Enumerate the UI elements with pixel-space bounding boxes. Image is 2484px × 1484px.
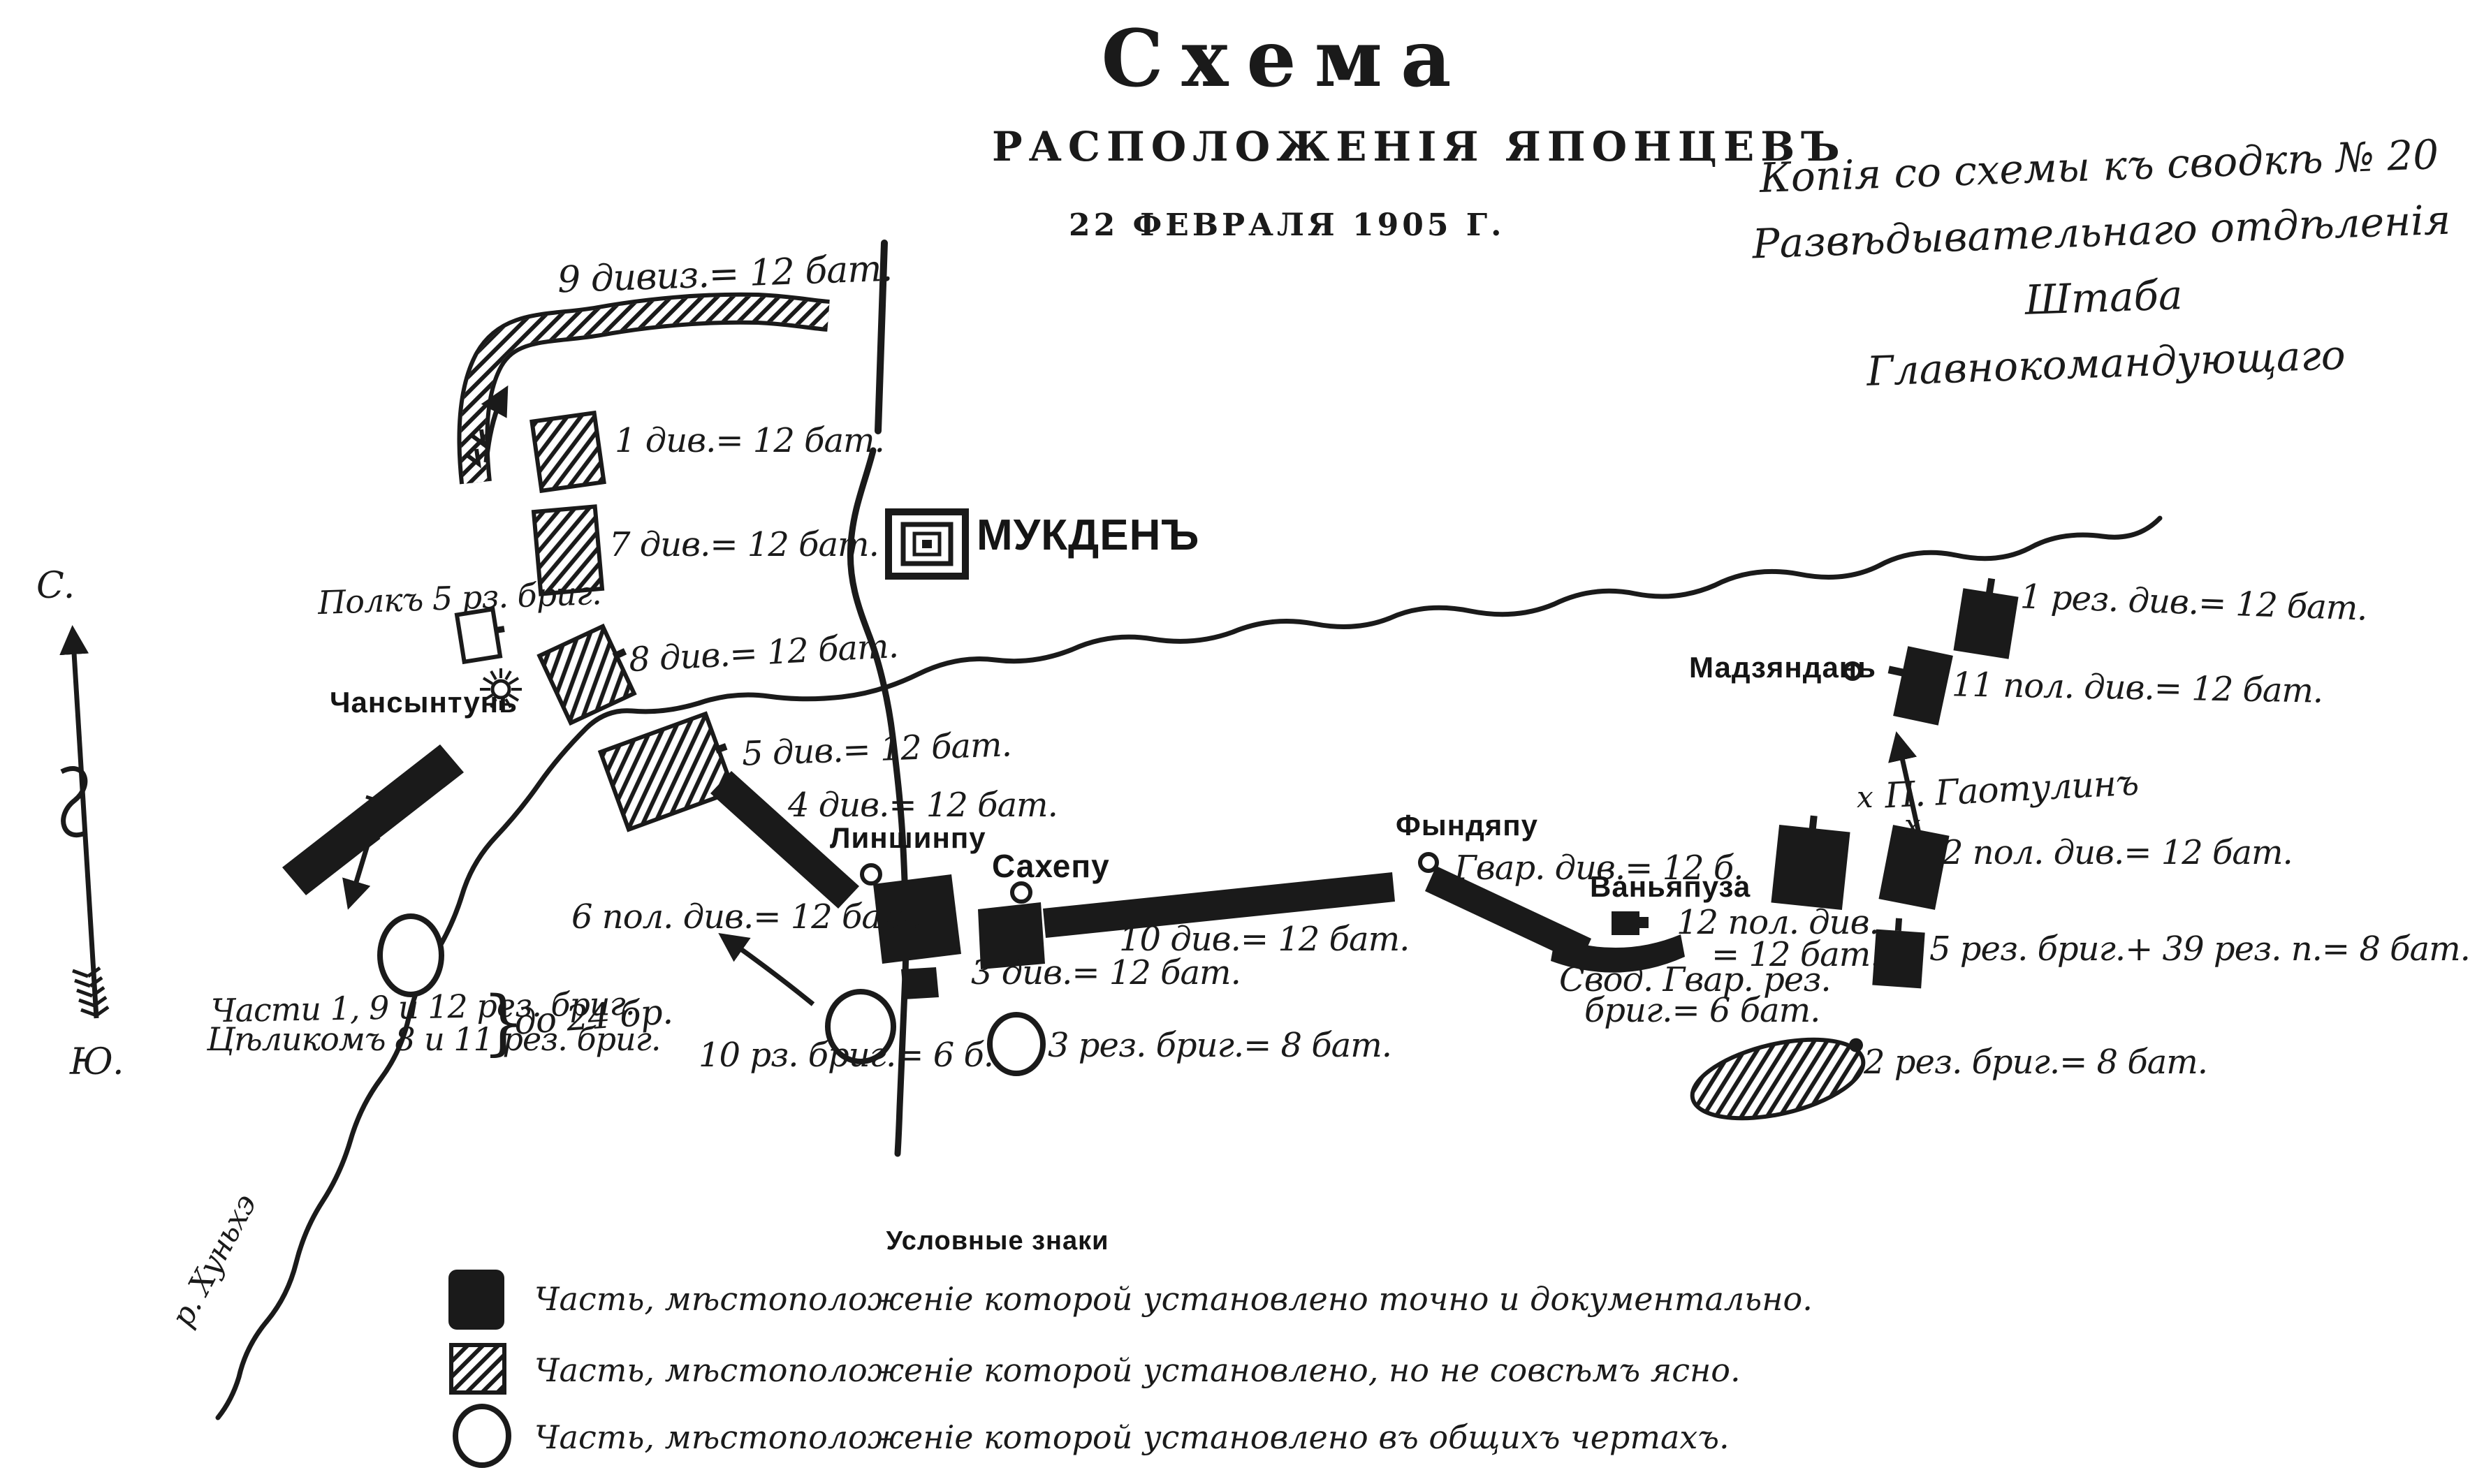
- compass: [61, 630, 108, 1018]
- compass-south-label: Ю.: [70, 1043, 124, 1082]
- label-unit-3rez: 3 рез. бриг.= 8 бат.: [1048, 1028, 1391, 1063]
- label-town-linshinpu: Линшинпу: [830, 823, 986, 853]
- unit-block-small: [901, 967, 939, 999]
- label-unit-11pol: 11 пол. див.= 12 бат.: [1952, 667, 2323, 709]
- vanyapuza-town-icon: [1612, 911, 1649, 935]
- unit-circle-3rez: [990, 1015, 1043, 1073]
- label-unit-6pol: 6 пол. див.= 12 бат.: [571, 899, 922, 934]
- unit-square-1div: [532, 413, 604, 491]
- page-title: Схема: [1076, 18, 1495, 101]
- label-unit-7div: 7 див.= 12 бат.: [609, 527, 879, 562]
- map-canvas: Схема РАСПОЛОЖЕНІЯ ЯПОНЦЕВЪ 22 ФЕВРАЛЯ 1…: [0, 0, 2484, 1484]
- compass-fletching: [73, 968, 108, 1015]
- label-unit-1div: 1 див.= 12 бат.: [615, 423, 884, 458]
- legend-symbol-hatched-square: [451, 1345, 504, 1393]
- arrow-to-6pol-label: [722, 936, 813, 1004]
- label-gaotulin-x2: х: [1904, 810, 1920, 841]
- label-town-mukden: МУКДЕНЪ: [977, 513, 1199, 558]
- label-town-sahepu: Сахепу: [992, 849, 1110, 883]
- label-unit-5rez: 5 рез. бриг.+ 39 рез. п.= 8 бат.: [1929, 932, 2470, 967]
- label-unit-2rez: 2 рез. бриг.= 8 бат.: [1864, 1045, 2207, 1080]
- sahepu-circle-icon: [1012, 883, 1030, 902]
- label-town-madzyandan: Мадзяндань: [1689, 652, 1876, 683]
- label-unit-10div: 10 див.= 12 бат.: [1119, 922, 1409, 957]
- unit-bar-chansyntun: [282, 744, 464, 895]
- source-note: Копія со схемы къ сводкѣ № 20 Развѣдыват…: [1721, 121, 2484, 409]
- legend-item-2-text: Часть, мѣстоположеніе которой установлен…: [534, 1353, 1741, 1387]
- label-town-fyndyapu: Фындяпу: [1396, 810, 1538, 841]
- legend-symbol-solid-square: [448, 1270, 504, 1330]
- unit-square-5div: [601, 711, 742, 830]
- label-unit-2pol: 2 пол. див.= 12 бат.: [1942, 835, 2293, 870]
- mukden-town-icon: [889, 512, 965, 576]
- legend-header: Условные знаки: [879, 1228, 1116, 1256]
- unit-square-1rez: [1953, 575, 2020, 659]
- unit-ellipse-2rez: [1685, 1024, 1874, 1133]
- legend-item-3-text: Часть, мѣстоположеніе которой установлен…: [534, 1420, 1730, 1454]
- unit-circle-24br: [380, 916, 441, 994]
- page-date: 22 ФЕВРАЛЯ 1905 Г.: [1069, 210, 1502, 242]
- label-town-vanyapuza: Ваньяпуза: [1590, 872, 1751, 902]
- label-town-chansyntun: Чансынтунь: [330, 687, 518, 718]
- page-subtitle: РАСПОЛОЖЕНІЯ ЯПОНЦЕВЪ: [992, 126, 1579, 168]
- legend-item-1-text: Часть, мѣстоположеніе которой установлен…: [534, 1282, 1813, 1316]
- linshinpu-circle-icon: [862, 865, 880, 883]
- label-unit-10rz: 10 рз. бриг.= 6 б.: [699, 1038, 993, 1073]
- compass-shaft: [73, 630, 96, 1018]
- fyndyapu-circle-icon: [1420, 854, 1437, 871]
- source-note-line2: Развѣдывательнаго отдѣленія Штаба: [1723, 186, 2482, 344]
- legend-symbol-circle: [455, 1406, 509, 1465]
- label-unit-4div: 4 див.= 12 бат.: [788, 788, 1058, 823]
- unit-square-5rez: [1872, 917, 1926, 989]
- compass-north-label: С.: [36, 567, 74, 605]
- unit-square-11pol: [1880, 643, 1953, 726]
- label-gaotulin-x1: х: [1857, 782, 1873, 813]
- label-unit-5div: 5 див.= 12 бат.: [741, 727, 1011, 772]
- unit-square-12pol: [1771, 812, 1851, 910]
- label-unit-3div: 3 див.= 12 бат.: [971, 955, 1241, 990]
- label-unit-polk5: Полкъ 5 рз. бриг.: [317, 576, 601, 619]
- label-unit-svod-line2: бриг.= 6 бат.: [1584, 993, 1820, 1028]
- unit-square-8div: [539, 622, 643, 723]
